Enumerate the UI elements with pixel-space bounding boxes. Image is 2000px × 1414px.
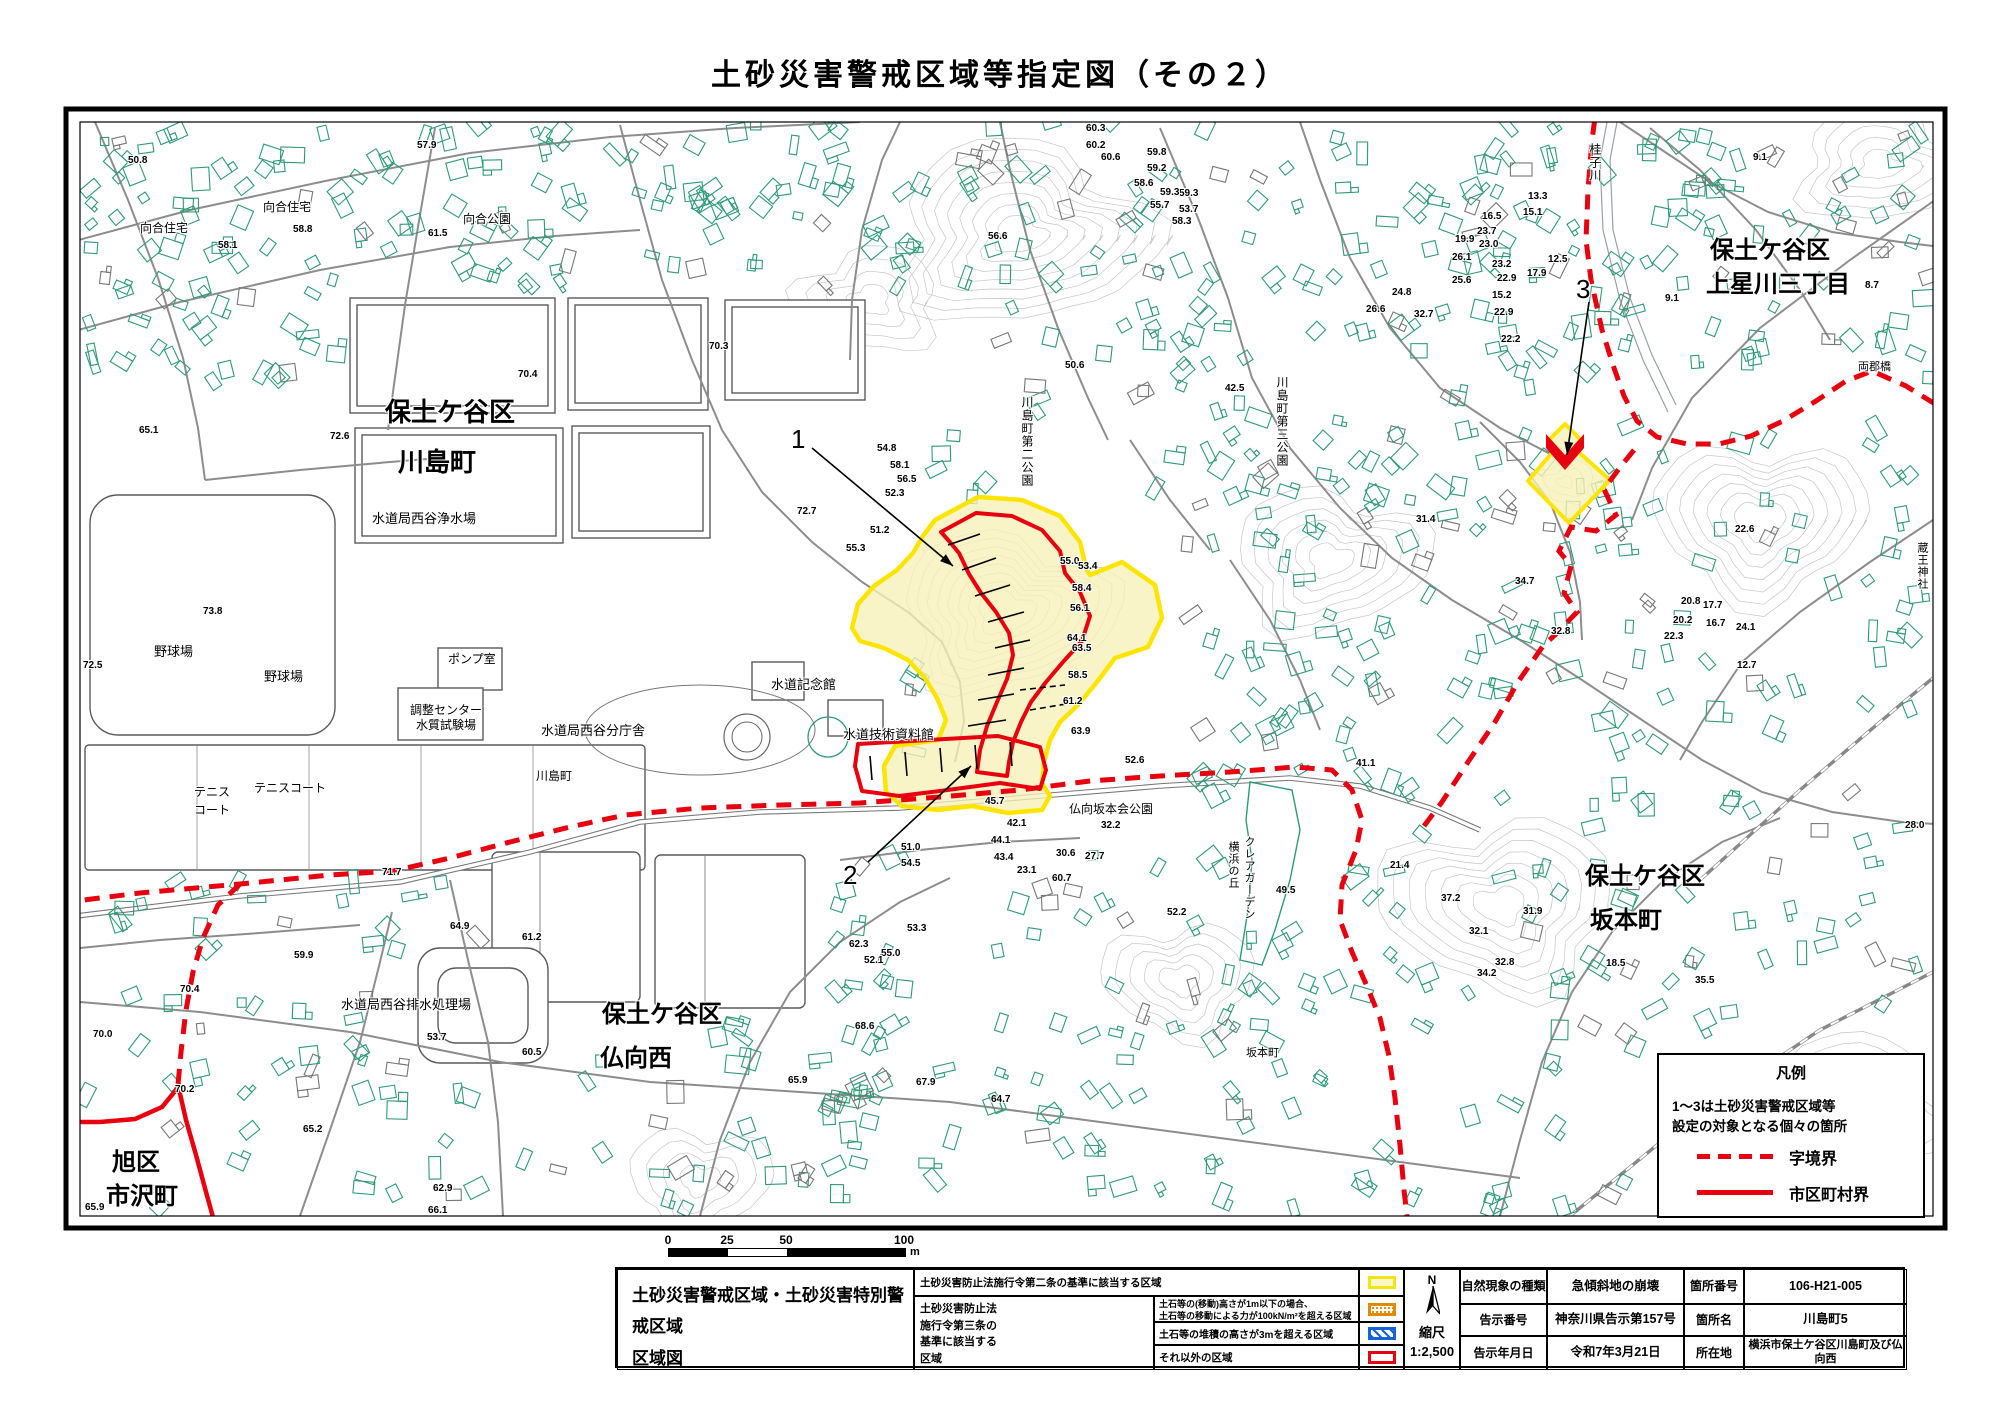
building-outline (1631, 791, 1653, 813)
swatch-cell-red (1359, 1345, 1404, 1370)
spot-elevation: 53.7 (427, 1032, 446, 1043)
building (1768, 301, 1780, 314)
building-outline (696, 177, 722, 200)
building (1223, 426, 1243, 446)
building-outline (1652, 245, 1677, 271)
building-outline (326, 345, 346, 363)
building (483, 160, 502, 175)
railway-line (1700, 678, 1933, 880)
place-label: 向合住宅 (140, 222, 188, 235)
spot-elevation: 63.5 (1072, 643, 1091, 654)
building-outline (300, 338, 320, 356)
building-outline (1191, 718, 1215, 742)
building (1244, 446, 1260, 462)
building-outline (1591, 711, 1615, 732)
building (1333, 478, 1349, 494)
building (550, 264, 563, 275)
spot-elevation: 15.1 (1523, 207, 1542, 218)
building-outline (1662, 973, 1679, 990)
building-outline (708, 1026, 728, 1047)
building-outline (1568, 245, 1579, 256)
building-outline (91, 206, 97, 212)
building (650, 1169, 670, 1178)
building (1571, 313, 1591, 339)
building (246, 996, 264, 1016)
building (239, 1120, 260, 1140)
road (60, 925, 360, 950)
building-outline (212, 940, 222, 950)
building-outline (1743, 801, 1761, 820)
building (798, 163, 822, 189)
building (237, 288, 255, 307)
building (592, 1141, 612, 1163)
building-outline (259, 144, 283, 165)
building-outline (1272, 1059, 1288, 1078)
building (1087, 1175, 1106, 1196)
building-outline (1485, 312, 1494, 322)
building-outline (738, 1117, 756, 1135)
spot-elevation: 9.1 (1753, 152, 1767, 163)
building-outline (356, 241, 362, 248)
spot-elevation: 34.2 (1477, 968, 1496, 979)
building-outline (381, 241, 398, 257)
building (1332, 143, 1352, 161)
legend-box: 凡例 1〜3は土砂災害警戒区域等 設定の対象となる個々の箇所 字境界 市区町村界 (1657, 1053, 1925, 1218)
building (453, 1083, 463, 1103)
building (1524, 379, 1535, 395)
spot-elevation: 35.5 (1695, 975, 1714, 986)
building-outline (1031, 1072, 1043, 1086)
building-outline (1270, 283, 1281, 294)
building (1447, 672, 1472, 698)
building (1396, 965, 1414, 983)
building-outline (1117, 912, 1134, 928)
place-label: 水道技術資料館 (843, 728, 934, 742)
spot-elevation: 57.9 (417, 140, 436, 151)
building (1302, 999, 1320, 1014)
spot-elevation: 56.1 (1070, 603, 1089, 614)
building-outline (1117, 1026, 1123, 1031)
building (1245, 407, 1272, 428)
building-outline (1642, 998, 1668, 1019)
building-outline (298, 1090, 309, 1098)
building (1618, 543, 1638, 556)
building-outline (1489, 1198, 1507, 1214)
spot-elevation: 60.5 (522, 1047, 541, 1058)
scale-bar-rule (668, 1248, 906, 1257)
building (1413, 825, 1432, 843)
building-outline (332, 193, 354, 218)
building-outline (830, 1185, 843, 1203)
building (1826, 198, 1845, 216)
building (1460, 1104, 1480, 1127)
building-outline (100, 271, 111, 284)
water-basin-inner (575, 305, 701, 403)
building (1247, 190, 1268, 211)
building-outline (1490, 184, 1503, 199)
building (1129, 1088, 1147, 1104)
building (196, 1023, 205, 1034)
building-outline (84, 242, 98, 254)
building (644, 250, 659, 260)
building-outline (1110, 1176, 1137, 1197)
building-outline (1413, 825, 1432, 843)
building (1077, 1026, 1100, 1044)
building-outline (398, 1092, 407, 1101)
building (211, 154, 237, 180)
legend-dashed-boundary-label: 字境界 (1789, 1145, 1837, 1169)
building-outline (1234, 396, 1244, 410)
building-outline (1170, 252, 1192, 278)
building-outline (1282, 1097, 1302, 1119)
building (304, 1054, 320, 1078)
spot-elevation: 24.1 (1736, 622, 1755, 633)
building-outline (686, 258, 707, 278)
contour-line (1734, 502, 1786, 543)
building (300, 338, 320, 356)
building (649, 1115, 668, 1130)
building-outline (1499, 605, 1517, 620)
info-value-location: 横浜市保土ケ谷区川島町及び仏向西 (1744, 1336, 1907, 1370)
building-outline (1769, 500, 1774, 506)
building-outline (1696, 128, 1712, 144)
building (292, 1003, 312, 1019)
spot-elevation: 62.3 (849, 939, 868, 950)
building (1376, 216, 1398, 227)
building-outline (1485, 341, 1500, 354)
building-outline (726, 123, 747, 143)
building (1421, 586, 1436, 605)
building-outline (1902, 700, 1917, 718)
building-outline (138, 143, 154, 154)
place-label: 水道記念館 (771, 678, 836, 692)
spot-elevation: 71.7 (382, 867, 401, 878)
building-outline (352, 1080, 375, 1105)
building-outline (1254, 450, 1260, 456)
building-outline (1651, 206, 1670, 227)
building (518, 273, 540, 295)
building-outline (655, 183, 672, 202)
spot-elevation: 31.9 (1523, 906, 1542, 917)
building (1873, 647, 1886, 668)
building-outline (789, 135, 799, 155)
building (326, 337, 347, 363)
building-outline (1676, 208, 1702, 231)
building (230, 205, 254, 231)
spot-elevation: 37.2 (1441, 893, 1460, 904)
building-outline (228, 162, 238, 172)
spot-elevation: 44.1 (991, 835, 1010, 846)
building-outline (141, 314, 151, 321)
building (1025, 1128, 1050, 1143)
building-outline (1896, 622, 1922, 648)
building-outline (1311, 1008, 1317, 1014)
building-outline (1212, 1182, 1232, 1208)
building (434, 875, 448, 890)
building-outline (1403, 193, 1429, 219)
building (466, 925, 489, 949)
building-outline (191, 167, 210, 191)
building-outline (1285, 550, 1290, 558)
building (1100, 1083, 1123, 1109)
building-outline (1861, 574, 1874, 587)
building (1437, 509, 1458, 521)
building-outline (1693, 962, 1697, 968)
building-outline (1210, 166, 1229, 182)
spot-elevation: 31.4 (1416, 514, 1435, 525)
info-value-site-number: 106-H21-005 (1744, 1269, 1907, 1304)
building-outline (1192, 498, 1208, 510)
building (1391, 442, 1419, 470)
building (1497, 231, 1516, 249)
road (1000, 122, 1108, 440)
spot-elevation: 73.8 (203, 606, 222, 617)
building-outline (1206, 1159, 1215, 1174)
spot-elevation: 70.4 (180, 984, 199, 995)
building (933, 1062, 956, 1078)
building-outline (1405, 495, 1416, 506)
building (1476, 634, 1487, 653)
building (1074, 909, 1092, 926)
building-outline (292, 1003, 306, 1019)
building-outline (193, 1077, 202, 1087)
building (446, 159, 468, 181)
building-outline (1185, 337, 1194, 347)
building (1357, 639, 1379, 661)
building (1191, 718, 1215, 742)
building-outline (1216, 1158, 1223, 1165)
contour-line (1254, 497, 1419, 628)
spot-elevation: 26.1 (1452, 252, 1471, 263)
building (1603, 506, 1632, 530)
building (1875, 323, 1888, 349)
building-outline (1087, 1175, 1105, 1189)
building (1164, 444, 1186, 464)
building-outline (1814, 936, 1838, 953)
legend-note-line1: 1〜3は土砂災害警戒区域等 (1672, 1095, 1836, 1115)
building (467, 156, 483, 169)
spot-elevation: 19.9 (1455, 234, 1474, 245)
building (1758, 949, 1774, 969)
building-outline (459, 271, 471, 282)
building (1646, 734, 1668, 754)
contour-line (1115, 934, 1241, 1036)
building-outline (1081, 265, 1098, 276)
building (1222, 964, 1234, 985)
spot-elevation: 32.1 (1469, 926, 1488, 937)
building (1498, 351, 1516, 371)
building-outline (1151, 306, 1159, 315)
building-outline (1399, 324, 1407, 332)
spot-elevation: 64.7 (991, 1094, 1010, 1105)
building-outline (1226, 1099, 1243, 1120)
building-outline (399, 1058, 409, 1065)
building (1535, 340, 1558, 357)
building-outline (1381, 768, 1402, 794)
building (516, 1148, 533, 1170)
building (991, 333, 1012, 349)
building (237, 998, 246, 1007)
scale-label: 縮尺 (1405, 1322, 1459, 1341)
building (1213, 1019, 1236, 1042)
building-outline (1657, 450, 1668, 464)
building (1258, 982, 1280, 1004)
building-outline (1923, 371, 1934, 384)
building-outline (1693, 210, 1705, 221)
building (1489, 1198, 1507, 1214)
building-outline (481, 119, 491, 130)
law3-row1-cell: 土石等の(移動)高さが1m以下の場合、 土石等の移動による力が100kN/m²を… (1154, 1296, 1359, 1322)
building-outline (747, 259, 756, 271)
building-outline (895, 980, 912, 999)
building (1637, 144, 1655, 154)
building (1657, 688, 1674, 705)
building (1053, 1137, 1074, 1160)
building (1845, 913, 1860, 927)
building (1868, 620, 1877, 642)
building (1323, 609, 1336, 621)
building-outline (1303, 661, 1313, 672)
building-outline (434, 875, 448, 890)
building-outline (1603, 672, 1627, 689)
building-outline (227, 1152, 248, 1171)
place-label: テニスコート (254, 782, 326, 795)
building-outline (164, 121, 188, 143)
building (1836, 217, 1856, 234)
place-label: 桂子川 (1589, 143, 1601, 182)
building-outline (1699, 653, 1716, 671)
building (1517, 617, 1539, 643)
spot-elevation: 16.7 (1706, 618, 1725, 629)
building (1547, 1061, 1562, 1076)
building (683, 135, 705, 156)
building-outline (822, 1100, 835, 1124)
building (1546, 668, 1561, 684)
building (1381, 457, 1399, 475)
building-outline (1462, 677, 1472, 687)
building (1441, 520, 1459, 531)
building (165, 872, 186, 890)
building (1691, 355, 1704, 369)
building (1463, 178, 1490, 205)
spot-elevation: 43.4 (994, 852, 1013, 863)
spot-elevation: 58.1 (218, 240, 237, 251)
building (255, 160, 273, 178)
building (1196, 845, 1223, 871)
building-outline (467, 156, 483, 169)
building (1027, 928, 1041, 941)
building-outline (1081, 1080, 1099, 1099)
building-outline (1258, 982, 1280, 1004)
building (1864, 855, 1884, 869)
building-outline (1414, 212, 1426, 224)
building-outline (1239, 491, 1248, 500)
building-outline (151, 339, 167, 356)
building-outline (200, 334, 212, 346)
building-outline (353, 1181, 375, 1195)
building-outline (1692, 554, 1716, 572)
building (861, 235, 887, 260)
building-outline (1025, 1128, 1050, 1143)
building (1595, 544, 1606, 553)
building (1085, 1145, 1105, 1156)
building (813, 214, 830, 231)
building-outline (632, 187, 647, 199)
spot-elevation: 22.9 (1497, 273, 1516, 284)
swatch-cell-blue (1359, 1322, 1404, 1345)
place-label: 両郡橋 (1858, 362, 1891, 374)
building (1084, 1130, 1106, 1154)
building-outline (1470, 428, 1478, 437)
building (1405, 495, 1416, 506)
building-outline (253, 360, 273, 385)
building (546, 119, 578, 151)
building (271, 1054, 294, 1076)
building-outline (286, 1060, 295, 1069)
building-outline (1877, 241, 1894, 258)
building (1923, 371, 1939, 384)
building (1181, 536, 1193, 552)
building-outline (1389, 902, 1405, 918)
building-outline (1615, 1023, 1637, 1044)
building (1550, 975, 1570, 999)
building-outline (650, 1169, 670, 1178)
building (677, 1200, 693, 1217)
building-outline (1896, 600, 1913, 615)
road (840, 838, 1080, 860)
building-outline (644, 250, 659, 260)
building-outline (808, 1052, 831, 1064)
building (112, 136, 127, 150)
building (995, 1067, 1010, 1079)
building-outline (246, 996, 264, 1016)
contour-line (1309, 543, 1354, 579)
building-outline (1116, 318, 1132, 333)
building-outline (1771, 686, 1780, 696)
spot-elevation: 54.8 (877, 443, 896, 454)
building (1612, 777, 1628, 801)
building-outline (1166, 1021, 1179, 1035)
building-outline (1563, 322, 1578, 340)
building (880, 975, 894, 990)
building (1461, 985, 1475, 1000)
building (1063, 883, 1082, 898)
building (1816, 918, 1835, 934)
building-outline (869, 1093, 882, 1105)
building-outline (1590, 798, 1598, 811)
building-outline (1441, 520, 1459, 531)
spot-elevation: 49.5 (1276, 885, 1295, 896)
building-outline (1500, 346, 1508, 352)
building (1094, 890, 1115, 912)
spot-elevation: 26.6 (1366, 304, 1385, 315)
building (1422, 241, 1438, 258)
building (1006, 300, 1019, 315)
building-outline (1840, 328, 1864, 352)
building (1154, 1182, 1168, 1197)
building-outline (1343, 747, 1356, 761)
building-outline (1158, 341, 1166, 350)
building (765, 1166, 786, 1184)
building-outline (990, 141, 999, 151)
building-outline (1492, 1182, 1511, 1200)
building (1356, 322, 1376, 341)
building (1476, 450, 1502, 470)
building-outline (1074, 909, 1092, 926)
building-outline (260, 238, 277, 256)
scale-tick-50: 50 (779, 1233, 792, 1247)
building-outline (752, 1137, 771, 1159)
